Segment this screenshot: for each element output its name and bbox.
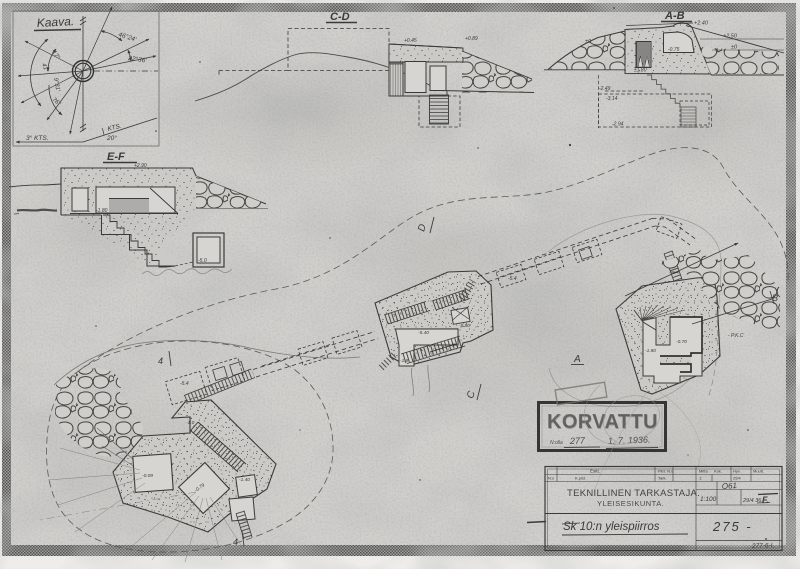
svg-text:Tark.: Tark.: [658, 476, 667, 481]
svg-text:F.: F.: [762, 495, 769, 505]
svg-text:4: 4: [233, 537, 238, 547]
svg-text:275 -: 275 -: [712, 519, 753, 534]
svg-text:-2.49: -2.49: [599, 86, 611, 92]
svg-text:3° KTS.: 3° KTS.: [26, 134, 49, 142]
svg-text:-0.09: -0.09: [142, 473, 153, 479]
svg-text:YLEISESIKUNTA.: YLEISESIKUNTA.: [597, 499, 664, 508]
svg-text:+2.50: +2.50: [723, 34, 738, 40]
svg-text:-5.90: -5.90: [459, 323, 470, 329]
svg-text:Muutt.: Muutt.: [753, 469, 764, 474]
svg-text:277-6-I.: 277-6-I.: [751, 542, 775, 550]
svg-text:K.pist.: K.pist.: [575, 476, 586, 481]
svg-text:- P.K.C: - P.K.C: [728, 333, 744, 339]
svg-text:25/4: 25/4: [733, 476, 742, 481]
svg-text:Mitta: Mitta: [699, 469, 708, 474]
svg-text:-5.4: -5.4: [180, 381, 189, 387]
svg-text:1:100: 1:100: [700, 496, 717, 503]
svg-text:+2.90: +2.90: [134, 163, 147, 169]
svg-text:-1.9: -1.9: [400, 358, 409, 364]
svg-text:-5.40: -5.40: [418, 330, 429, 336]
svg-text:Kok.: Kok.: [714, 469, 722, 474]
svg-text:Hyv.: Hyv.: [733, 469, 741, 474]
svg-text:N:olla: N:olla: [550, 440, 563, 446]
svg-text:Kaava.: Kaava.: [36, 14, 74, 30]
svg-text:TEKNILLINEN TARKASTAJA.: TEKNILLINEN TARKASTAJA.: [567, 488, 700, 499]
svg-text:A: A: [573, 354, 581, 365]
svg-text:±1.80: ±1.80: [634, 68, 647, 74]
svg-text:E-F: E-F: [107, 151, 125, 163]
svg-text:±0: ±0: [731, 45, 738, 51]
svg-text:1:: 1:: [699, 476, 702, 481]
svg-text:O61: O61: [722, 481, 738, 491]
svg-text:A-B: A-B: [664, 10, 685, 22]
svg-text:±0: ±0: [585, 39, 592, 45]
svg-text:-1.0: -1.0: [186, 420, 195, 426]
svg-text:-1.40: -1.40: [239, 477, 250, 483]
svg-text:-1.80: -1.80: [645, 348, 656, 354]
svg-text:+0.45: +0.45: [404, 38, 417, 44]
svg-text:-0.75: -0.75: [668, 47, 680, 53]
svg-text:-3.14: -3.14: [606, 96, 618, 102]
svg-text:277: 277: [569, 435, 586, 446]
svg-text:-0.70: -0.70: [676, 339, 687, 345]
svg-text:+2.40: +2.40: [694, 21, 709, 27]
svg-text:Piirt. N:o: Piirt. N:o: [658, 469, 674, 474]
svg-text:Esitt.: Esitt.: [590, 469, 600, 474]
svg-text:-1.80: -1.80: [96, 208, 108, 214]
svg-text:-5.4: -5.4: [508, 276, 517, 282]
svg-text:-2.94: -2.94: [612, 122, 624, 128]
svg-text:-5.0: -5.0: [198, 258, 207, 264]
svg-text:C-D: C-D: [330, 11, 350, 23]
svg-text:20°: 20°: [106, 134, 117, 142]
svg-text:4: 4: [158, 356, 163, 366]
svg-text:N:o: N:o: [548, 476, 555, 481]
svg-text:+0.89: +0.89: [465, 36, 478, 42]
